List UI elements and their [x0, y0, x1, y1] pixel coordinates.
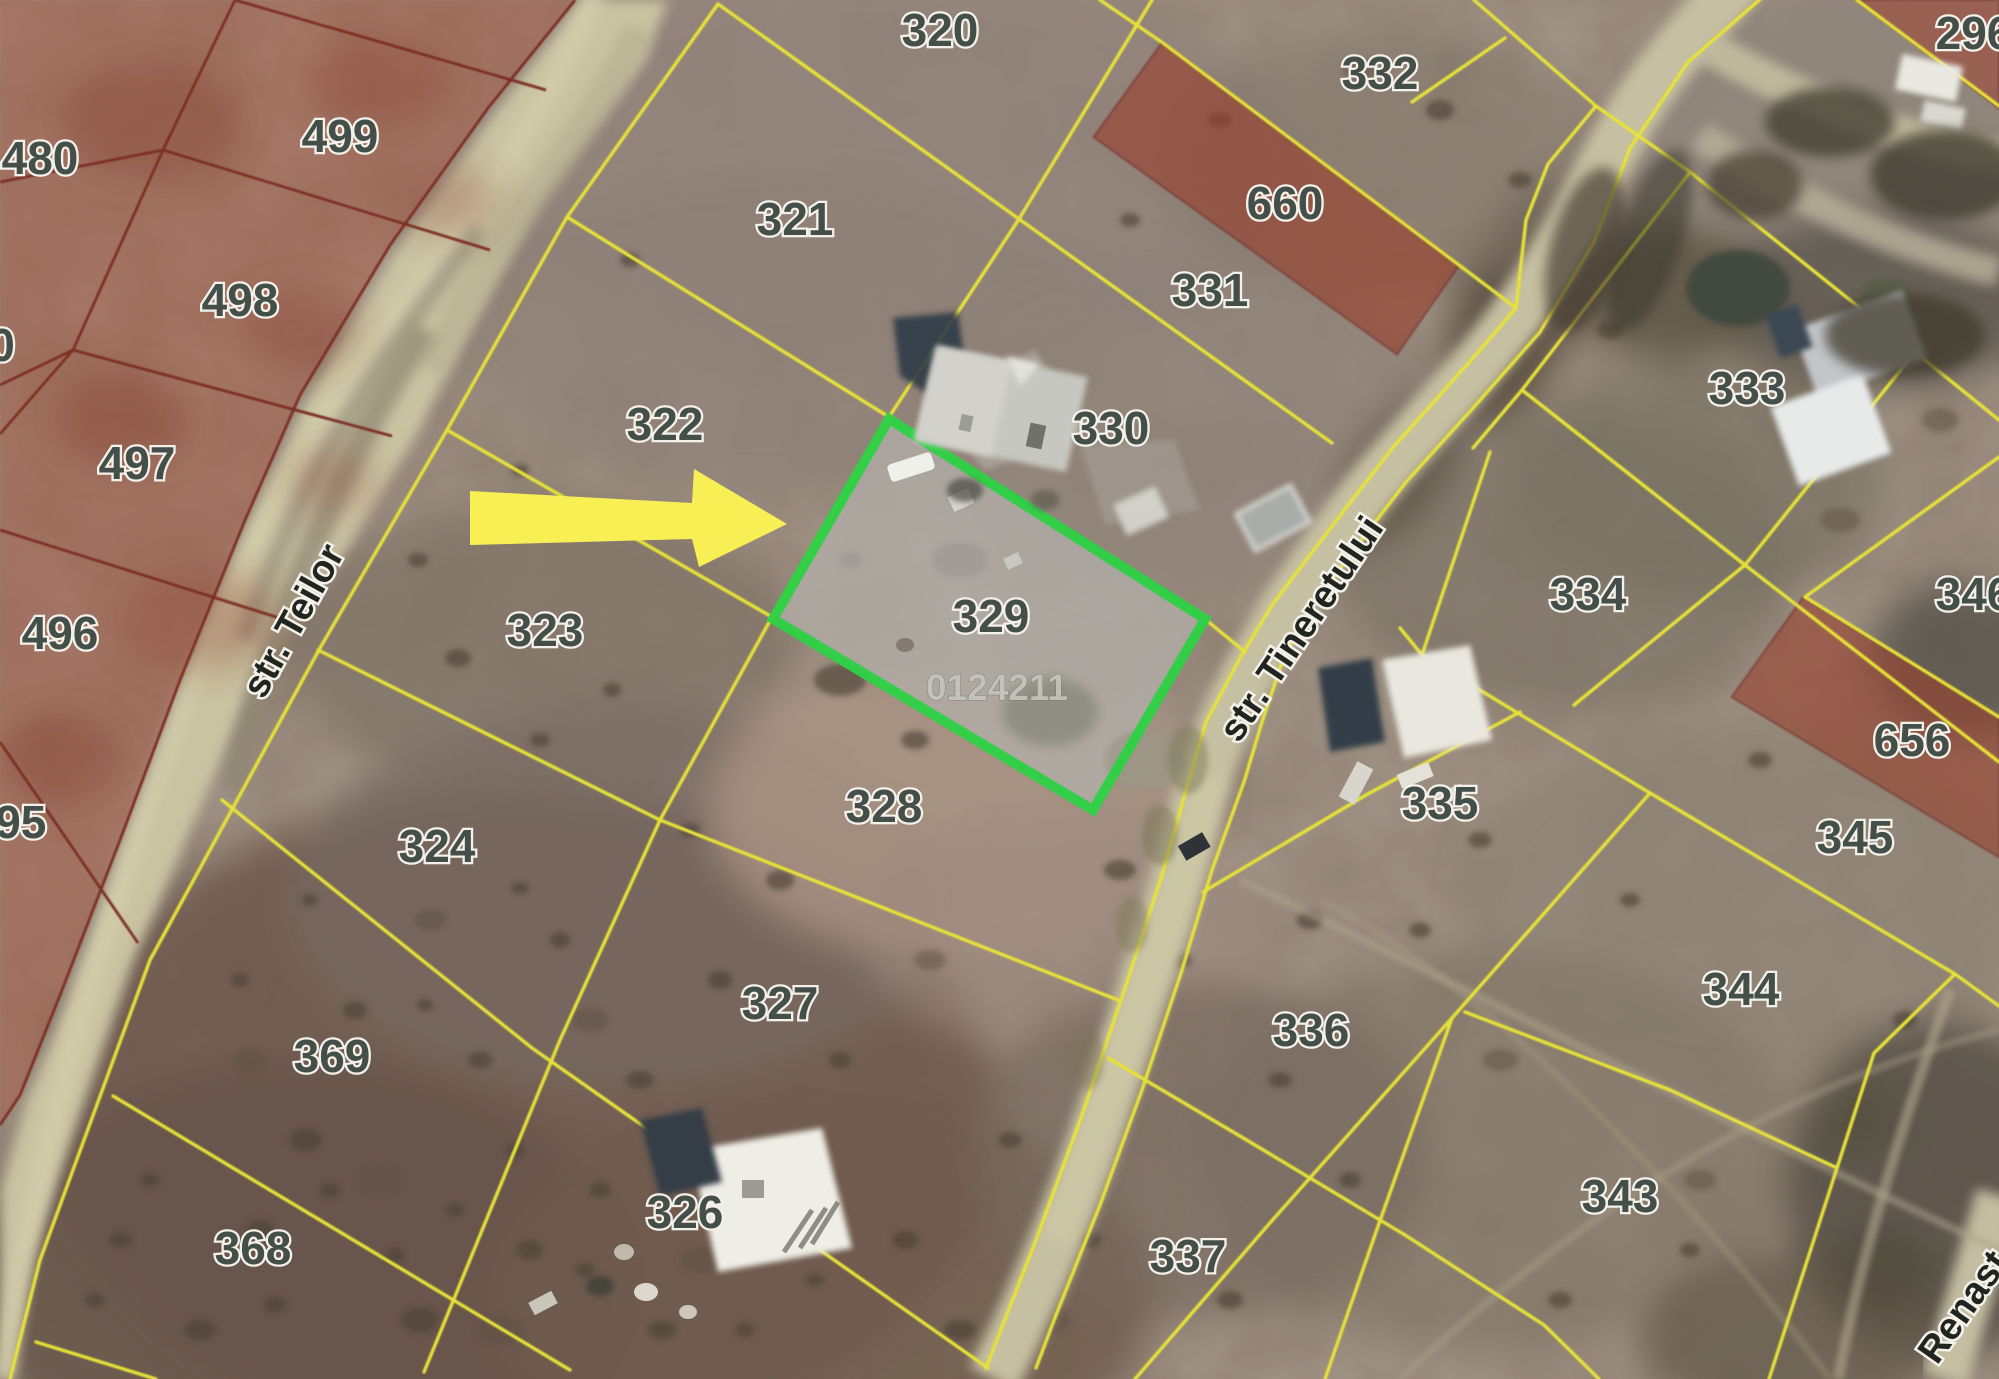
- svg-text:0124211: 0124211: [926, 667, 1068, 708]
- svg-text:480: 480: [2, 132, 79, 184]
- svg-text:335: 335: [1402, 777, 1479, 829]
- svg-text:336: 336: [1273, 1004, 1350, 1056]
- svg-text:333: 333: [1709, 362, 1786, 414]
- svg-text:324: 324: [399, 820, 476, 872]
- svg-text:498: 498: [202, 274, 279, 326]
- svg-text:330: 330: [1073, 402, 1150, 454]
- svg-text:499: 499: [302, 110, 379, 162]
- svg-text:497: 497: [99, 437, 176, 489]
- svg-text:345: 345: [1817, 811, 1894, 863]
- svg-text:656: 656: [1874, 714, 1951, 766]
- svg-text:327: 327: [742, 977, 819, 1029]
- svg-text:495: 495: [0, 796, 46, 848]
- svg-text:0: 0: [0, 319, 15, 371]
- svg-text:334: 334: [1550, 568, 1627, 620]
- svg-text:368: 368: [215, 1222, 292, 1274]
- svg-text:321: 321: [757, 193, 834, 245]
- svg-text:369: 369: [294, 1030, 371, 1082]
- svg-text:323: 323: [507, 604, 584, 656]
- svg-text:296: 296: [1936, 7, 1999, 59]
- svg-text:343: 343: [1582, 1170, 1659, 1222]
- svg-text:337: 337: [1150, 1230, 1227, 1282]
- svg-text:496: 496: [22, 607, 99, 659]
- svg-text:328: 328: [846, 780, 923, 832]
- svg-text:331: 331: [1172, 264, 1249, 316]
- svg-text:344: 344: [1703, 963, 1780, 1015]
- svg-text:322: 322: [627, 398, 704, 450]
- svg-text:660: 660: [1247, 177, 1324, 229]
- svg-text:320: 320: [902, 4, 979, 56]
- svg-text:332: 332: [1342, 47, 1419, 99]
- svg-text:346: 346: [1936, 568, 1999, 620]
- svg-text:329: 329: [953, 590, 1030, 642]
- svg-text:326: 326: [647, 1186, 724, 1238]
